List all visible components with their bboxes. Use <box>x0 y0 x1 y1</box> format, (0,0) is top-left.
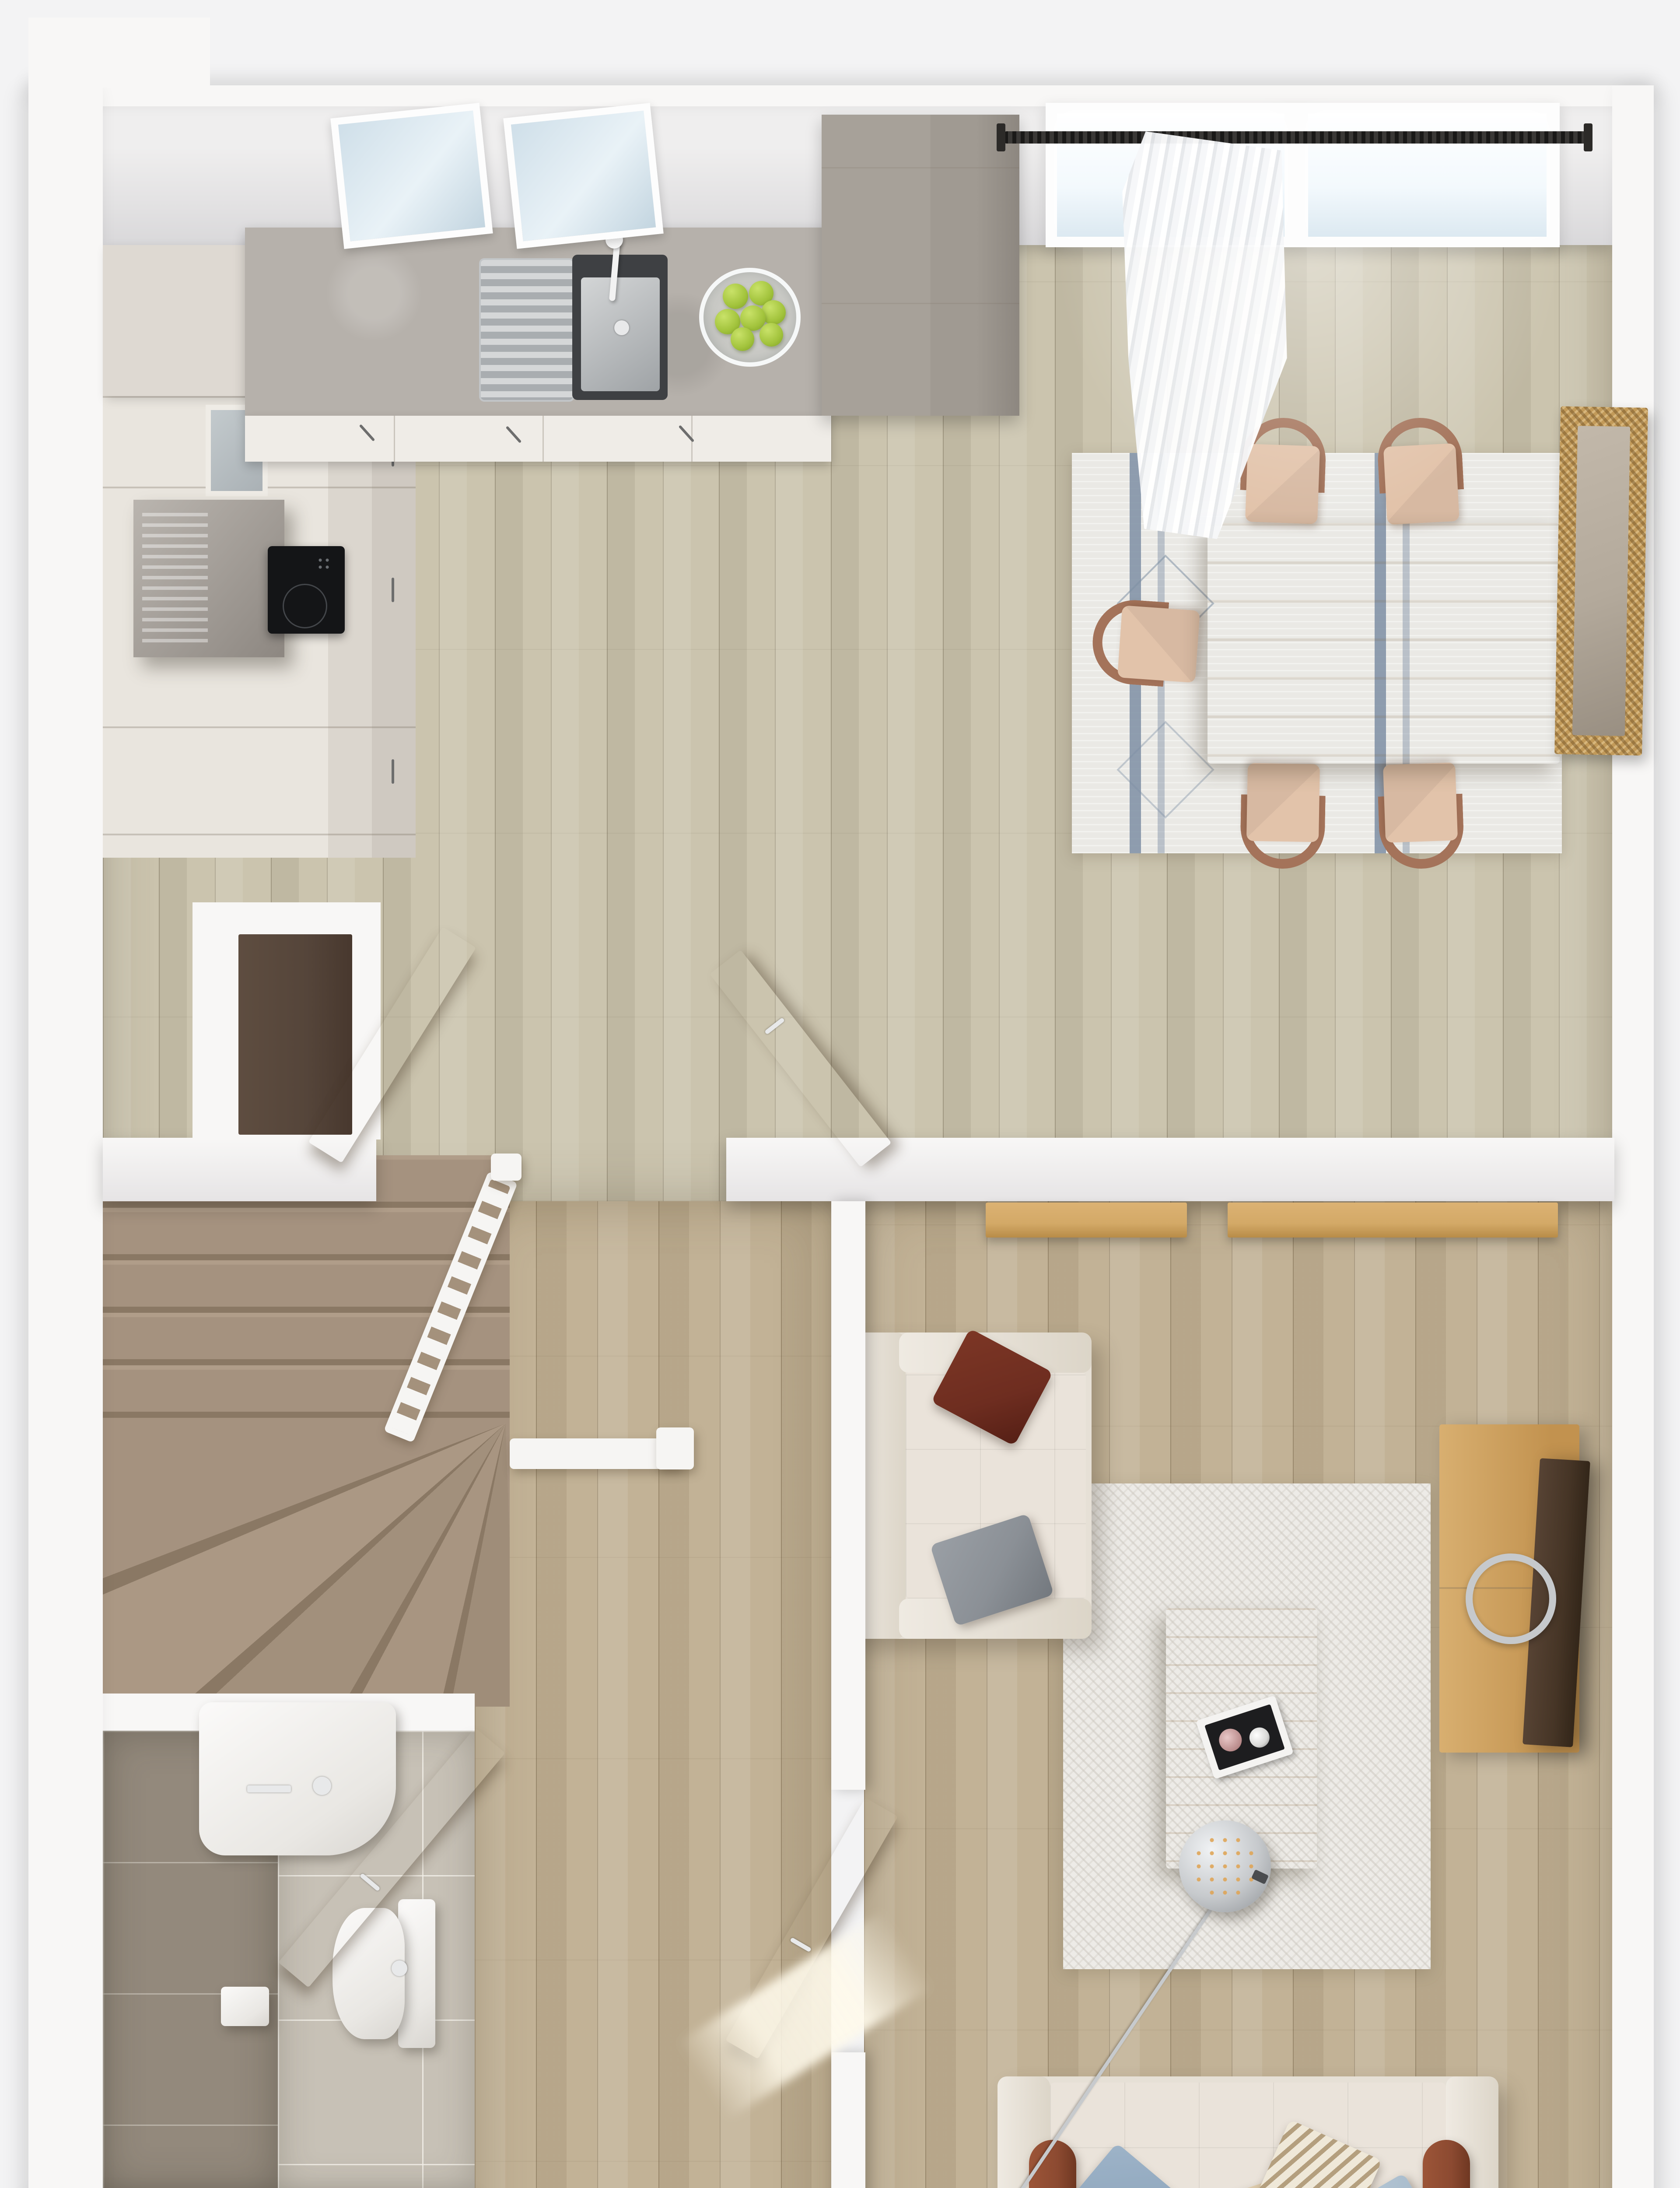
apple <box>723 284 748 309</box>
kitchen-unit-front <box>245 416 831 462</box>
tall-grey-unit <box>822 115 1019 416</box>
hall-floor <box>475 1201 831 2188</box>
hob-ring <box>283 584 327 628</box>
skylight <box>330 103 493 249</box>
induction-hob <box>268 546 345 634</box>
corner-basin <box>199 1702 396 1855</box>
basin-tap-icon <box>247 1785 291 1792</box>
dining-chair <box>1374 757 1468 870</box>
cabinet-corner-block <box>103 245 252 396</box>
toilet-flush-icon <box>392 1960 407 1976</box>
extractor-hood <box>133 500 284 657</box>
stair-tread <box>103 1365 510 1418</box>
oak-wall-shelf <box>986 1203 1187 1238</box>
cabinet-handle <box>392 578 394 602</box>
door-handle-icon <box>764 1017 785 1035</box>
cabinet-seam <box>103 726 416 728</box>
cabinet-seam <box>103 834 416 835</box>
unit-front-seam <box>394 416 395 462</box>
sink-drainer <box>479 258 574 402</box>
door-handle-icon <box>790 1937 812 1953</box>
curtain-rod-finial <box>1584 123 1592 151</box>
balustrade-post-top <box>491 1154 521 1181</box>
bathroom <box>103 1694 475 2188</box>
sink-basin <box>572 255 668 400</box>
sink-waste-icon <box>614 320 629 335</box>
curtain-rod-top <box>1004 131 1586 144</box>
outer-wall-right <box>1612 85 1654 2188</box>
toilet-roll-holder <box>221 1987 269 2026</box>
stair-handrail <box>510 1438 680 1469</box>
dining-chair <box>1237 758 1329 870</box>
floor-plan-render <box>0 0 1680 2188</box>
floor-lamp-shade <box>1179 1820 1271 1912</box>
drawer-handle <box>359 424 375 442</box>
basin-plug-icon <box>313 1777 331 1795</box>
wall-mirror <box>1554 406 1648 755</box>
oak-wall-shelf <box>1228 1203 1558 1238</box>
dining-chair <box>1373 416 1469 529</box>
stair-winders <box>103 1418 510 1707</box>
hob-controls <box>317 557 332 572</box>
grey-unit-seam <box>822 167 1019 168</box>
stair-tread <box>103 1208 510 1260</box>
outer-wall-left <box>28 85 103 2188</box>
roof-ledge <box>28 18 210 88</box>
apple <box>759 323 783 347</box>
skylight <box>503 103 664 249</box>
mirror-glass <box>1572 426 1630 736</box>
bolster-cushion <box>1423 2140 1470 2188</box>
newel-post <box>656 1427 694 1469</box>
staircase <box>103 1155 510 1707</box>
curtain-rod-finial <box>997 123 1005 151</box>
hall-living-wall-upper <box>831 1201 865 1790</box>
lamp-perforations <box>1192 1834 1258 1899</box>
dining-chair <box>1090 595 1205 692</box>
dining-window <box>1046 103 1560 247</box>
chrome-ring-ornament <box>1466 1553 1556 1644</box>
drawer-handle <box>506 426 522 443</box>
grey-unit-seam <box>822 303 1019 304</box>
unit-front-seam <box>542 416 544 462</box>
apple <box>731 327 754 351</box>
lamp-notch <box>1251 1869 1269 1884</box>
fruit-bowl <box>699 268 801 367</box>
hood-vent-lines <box>142 511 208 642</box>
cabinet-handle <box>392 759 394 784</box>
dining-table <box>1207 523 1560 764</box>
door-handle-icon <box>360 1873 381 1891</box>
hall-living-wall-lower <box>831 2052 865 2188</box>
